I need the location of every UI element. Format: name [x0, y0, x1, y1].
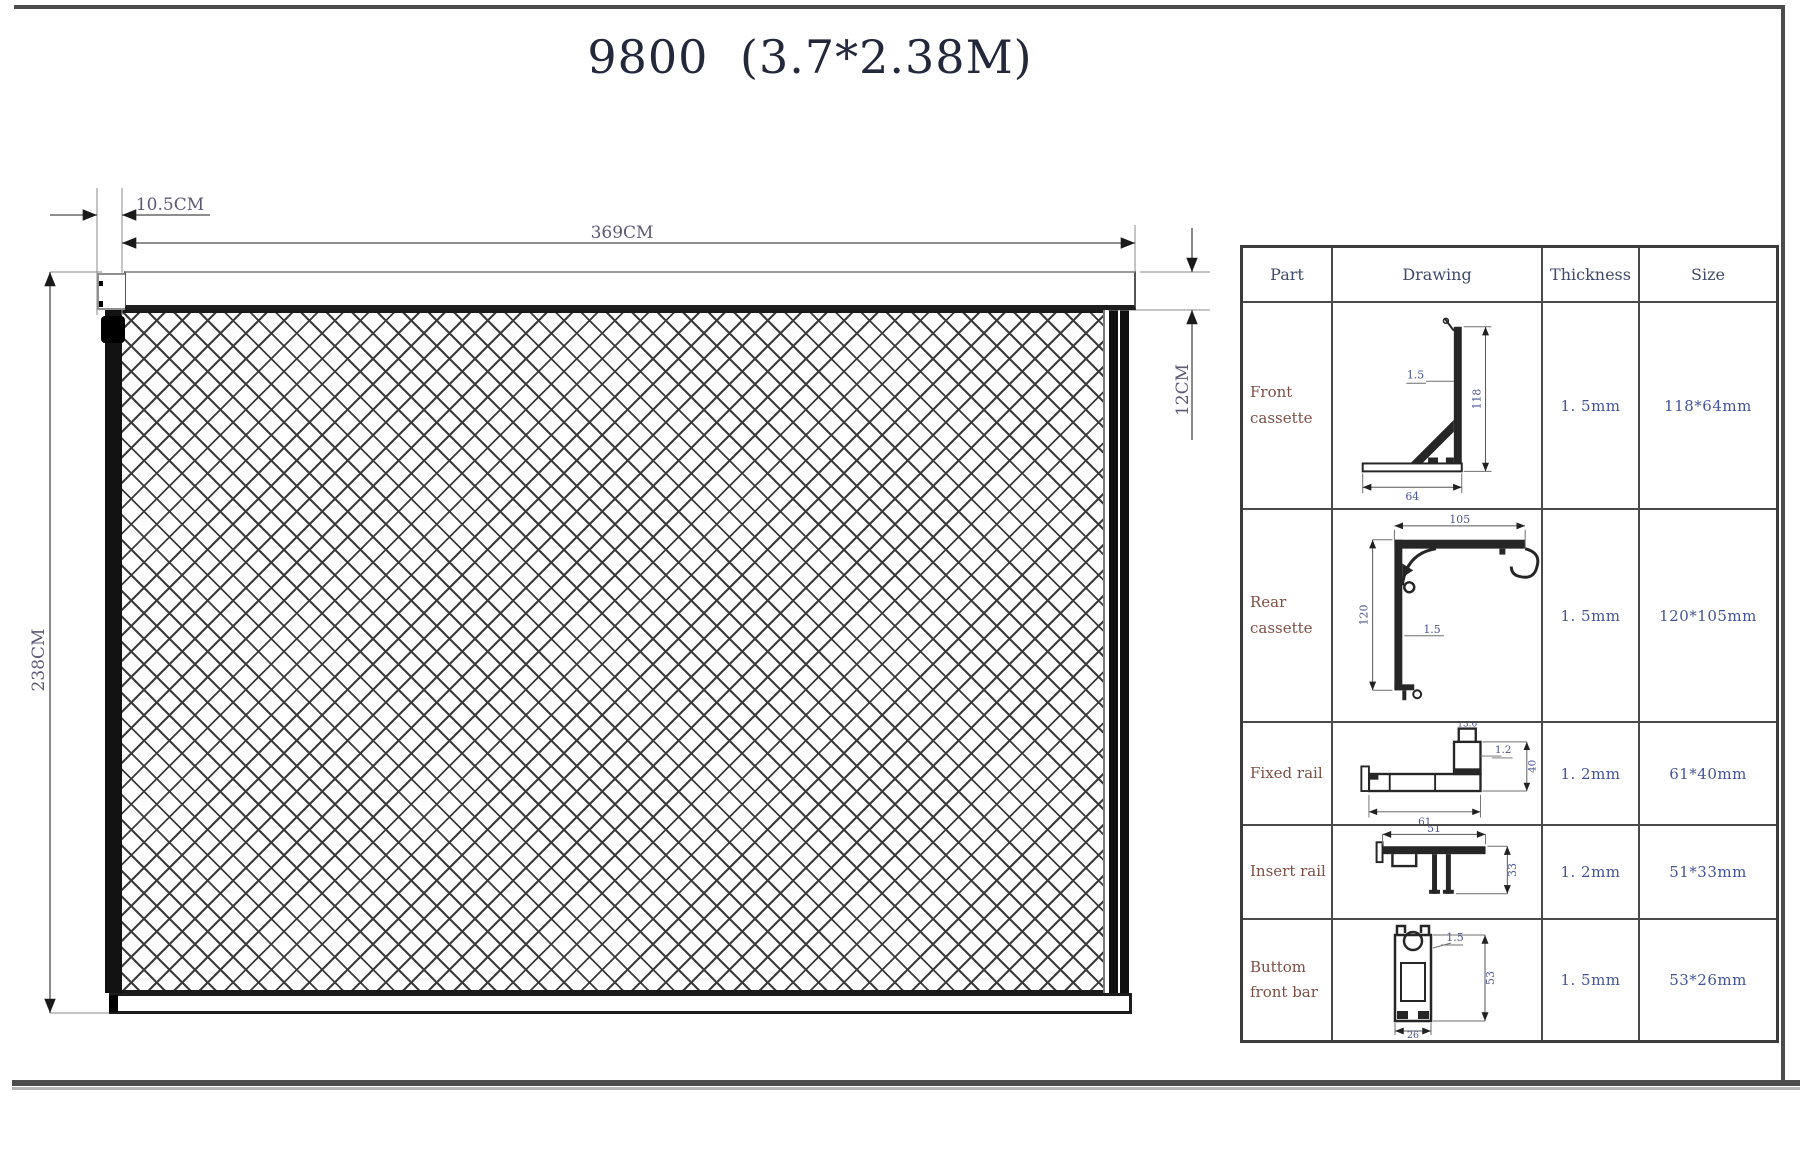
col-header-drawing: Drawing [1333, 248, 1543, 303]
col-header-part: Part [1243, 248, 1333, 303]
bottom-front-bar [109, 993, 1132, 1014]
insert-rail-profile: 51 33 [1333, 826, 1541, 918]
size-insert-rail: 51*33mm [1640, 826, 1776, 920]
profile-drawing-rear-cassette: 105 120 1.5 [1333, 510, 1543, 723]
col-header-size: Size [1640, 248, 1776, 303]
profile-drawing-buttom-front-bar: 1.5 53 26 [1333, 920, 1543, 1040]
profile-drawing-insert-rail: 51 33 [1333, 826, 1543, 920]
sheet-bottom-border [12, 1080, 1800, 1086]
sheet-top-border [14, 5, 1784, 9]
buttom-bar-width-label: 26 [1407, 1030, 1419, 1039]
part-name-rear-cassette: Rear cassette [1243, 510, 1333, 723]
thickness-front-cassette: 1. 5mm [1543, 303, 1640, 510]
profile-drawing-front-cassette: 118 64 1.5 [1333, 303, 1543, 510]
end-cap-dot [99, 301, 103, 307]
insert-rail-width-label: 51 [1427, 826, 1441, 835]
left-rail-bracket [101, 316, 125, 343]
rear-cassette-width-label: 105 [1449, 513, 1470, 526]
fixed-rail-thickness-label: 1.2 [1495, 744, 1512, 756]
rear-cassette-thickness-label: 1.5 [1423, 623, 1440, 636]
profile-drawing-fixed-rail: 13.6 1.2 61 40 [1333, 723, 1543, 826]
dim-label-width: 369CM [591, 223, 654, 243]
front-cassette-thickness-label: 1.5 [1407, 368, 1424, 381]
rear-cassette-profile: 105 120 1.5 [1333, 513, 1541, 718]
dim-label-height: 238CM [29, 629, 49, 692]
front-cassette-width-label: 64 [1405, 490, 1419, 503]
size-rear-cassette: 120*105mm [1640, 510, 1776, 723]
front-cassette-profile: 118 64 1.5 [1333, 308, 1541, 503]
fixed-rail-height-label: 40 [1526, 759, 1538, 772]
part-name-front-cassette: Front cassette [1243, 303, 1333, 510]
drawing-sheet: 9800 (3.7*2.38M) 10.5CM 369CM 238CM [0, 0, 1800, 1161]
fixed-rail-profile: 13.6 1.2 61 40 [1333, 723, 1541, 826]
dim-label-cassette-height: 12CM [1173, 364, 1193, 416]
sheet-bottom-border-shadow [12, 1087, 1800, 1090]
thickness-insert-rail: 1. 2mm [1543, 826, 1640, 920]
fixed-rail-width-label: 61 [1418, 816, 1431, 826]
bottom-bar-end-cap [109, 995, 118, 1012]
size-front-cassette: 118*64mm [1640, 303, 1776, 510]
sheet-right-border [1781, 5, 1785, 1083]
dim-label-offset: 10.5CM [136, 195, 204, 215]
top-cassette [124, 271, 1136, 310]
rear-cassette-height-label: 120 [1358, 605, 1371, 626]
size-fixed-rail: 61*40mm [1640, 723, 1776, 826]
thickness-buttom-front-bar: 1. 5mm [1543, 920, 1640, 1040]
part-name-insert-rail: Insert rail [1243, 826, 1333, 920]
size-buttom-front-bar: 53*26mm [1640, 920, 1776, 1040]
thickness-fixed-rail: 1. 2mm [1543, 723, 1640, 826]
front-cassette-height-label: 118 [1471, 389, 1484, 410]
part-name-fixed-rail: Fixed rail [1243, 723, 1333, 826]
parts-table: Part Drawing Thickness Size Front casset… [1240, 245, 1779, 1043]
fixed-rail-notch-label: 13.6 [1457, 723, 1477, 729]
buttom-bar-thickness-label: 1.5 [1446, 931, 1464, 944]
end-cap-dot [99, 281, 103, 286]
buttom-front-bar-profile: 1.5 53 26 [1337, 921, 1537, 1039]
insert-rail-height-label: 33 [1506, 863, 1519, 877]
part-name-buttom-front-bar: Buttom front bar [1243, 920, 1333, 1040]
buttom-bar-height-label: 53 [1484, 971, 1497, 985]
page-title: 9800 (3.7*2.38M) [0, 30, 1620, 84]
thickness-rear-cassette: 1. 5mm [1543, 510, 1640, 723]
col-header-thickness: Thickness [1543, 248, 1640, 303]
